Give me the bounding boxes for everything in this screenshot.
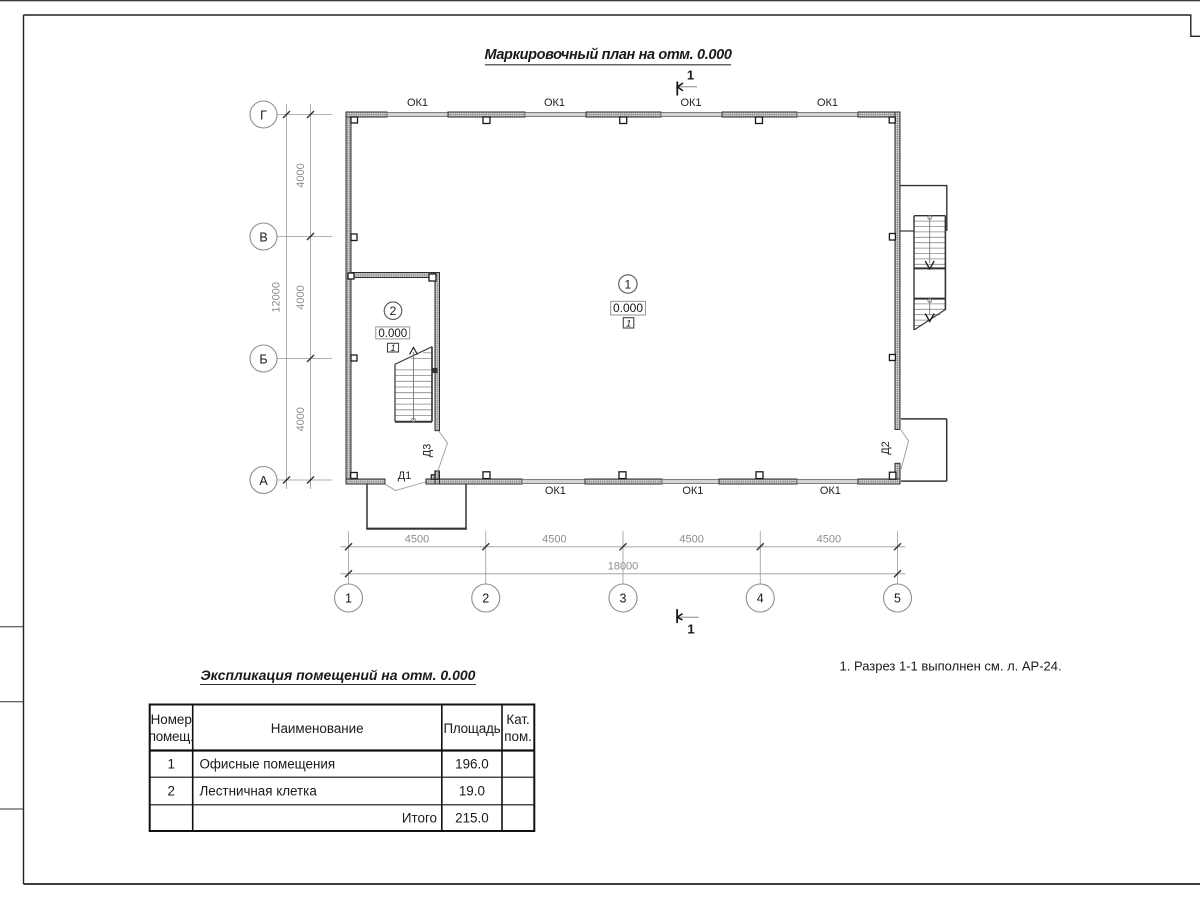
svg-text:Маркировочный план на отм. 0.0: Маркировочный план на отм. 0.000 xyxy=(484,47,731,63)
svg-text:1: 1 xyxy=(625,278,632,292)
svg-text:19.0: 19.0 xyxy=(459,784,485,799)
svg-text:1: 1 xyxy=(167,757,174,772)
svg-text:4500: 4500 xyxy=(679,534,703,546)
svg-text:5: 5 xyxy=(894,592,901,606)
svg-text:1: 1 xyxy=(687,622,694,637)
svg-text:3: 3 xyxy=(620,592,627,606)
svg-text:215.0: 215.0 xyxy=(455,811,489,826)
svg-text:Лестничная клетка: Лестничная клетка xyxy=(200,784,318,799)
svg-text:4500: 4500 xyxy=(405,534,429,546)
svg-text:ОК1: ОК1 xyxy=(544,97,565,109)
svg-text:ОК1: ОК1 xyxy=(407,97,428,109)
svg-text:1: 1 xyxy=(390,343,395,353)
svg-text:ОК1: ОК1 xyxy=(820,485,841,497)
svg-text:помещ.: помещ. xyxy=(149,729,194,744)
svg-text:Номер: Номер xyxy=(151,712,192,727)
svg-text:ОК1: ОК1 xyxy=(680,97,701,109)
svg-text:4000: 4000 xyxy=(295,285,307,309)
svg-text:Д3: Д3 xyxy=(422,444,434,458)
svg-text:ОК1: ОК1 xyxy=(817,97,838,109)
svg-text:4: 4 xyxy=(757,592,764,606)
svg-text:2: 2 xyxy=(390,304,397,318)
svg-text:1: 1 xyxy=(345,592,352,606)
svg-text:4500: 4500 xyxy=(542,534,566,546)
svg-text:Площадь: Площадь xyxy=(443,721,500,736)
svg-text:4000: 4000 xyxy=(295,407,307,431)
svg-text:4500: 4500 xyxy=(817,534,841,546)
svg-text:1: 1 xyxy=(626,318,631,329)
svg-text:196.0: 196.0 xyxy=(455,757,489,772)
svg-text:Б: Б xyxy=(259,353,267,367)
svg-text:Итого: Итого xyxy=(402,811,437,826)
svg-text:ОК1: ОК1 xyxy=(545,485,566,497)
svg-text:Г: Г xyxy=(260,109,267,123)
svg-text:В: В xyxy=(259,231,267,245)
svg-text:Д2: Д2 xyxy=(880,441,892,455)
svg-text:ОК1: ОК1 xyxy=(682,485,703,497)
svg-text:Экспликация помещений на отм.: Экспликация помещений на отм. 0.000 xyxy=(201,667,476,683)
svg-text:12000: 12000 xyxy=(271,282,283,313)
svg-text:Наименование: Наименование xyxy=(271,721,364,736)
svg-text:2: 2 xyxy=(482,592,489,606)
svg-text:А: А xyxy=(259,474,268,488)
svg-text:18000: 18000 xyxy=(608,561,639,573)
svg-text:0.000: 0.000 xyxy=(613,301,643,315)
svg-text:1: 1 xyxy=(687,67,694,82)
svg-text:пом.: пом. xyxy=(504,729,532,744)
svg-text:4000: 4000 xyxy=(295,163,307,187)
svg-text:Кат.: Кат. xyxy=(506,712,529,727)
svg-text:1. Разрез 1-1 выполнен см. л.: 1. Разрез 1-1 выполнен см. л. АР-24. xyxy=(840,659,1062,674)
svg-text:0.000: 0.000 xyxy=(378,328,407,340)
svg-text:2: 2 xyxy=(167,784,174,799)
svg-text:Д1: Д1 xyxy=(398,470,412,482)
svg-text:Офисные помещения: Офисные помещения xyxy=(200,757,336,772)
